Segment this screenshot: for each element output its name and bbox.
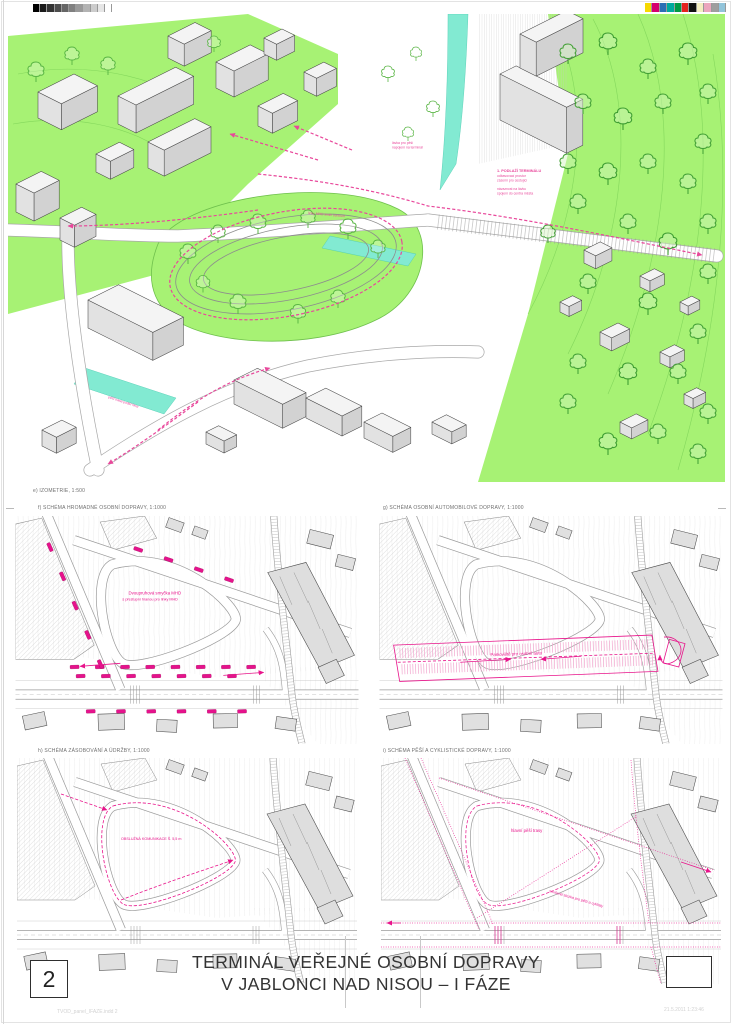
iso-caption: e) IZOMETRIE, 1:500 (33, 488, 85, 494)
presentation-board: lávka pro pěší napojení na terminál 1. P… (0, 0, 732, 1024)
plan-f-note1: Dvoupruhová smyčka MHD (128, 591, 181, 596)
calibration-swatch (98, 4, 105, 12)
plan-caption-h: h) SCHÉMA ZÁSOBOVÁNÍ A ÚDRŽBY, 1:1000 (38, 748, 150, 754)
footer-filename: TVOD_panel_IFAZE.indd 2 (57, 1009, 118, 1015)
isometric-drawing: lávka pro pěší napojení na terminál 1. P… (8, 14, 725, 482)
color-calibration-bar (645, 3, 726, 12)
iso-label-roof-4: spojení do centra města (497, 192, 533, 196)
iso-label-bridge-2: napojení na terminál (392, 146, 423, 150)
calibration-swatch (55, 4, 62, 12)
plan-panel-service: OBSLUŽNÁ KOMUNIKACE Š. 5,5 m (12, 758, 362, 984)
calibration-swatch (33, 4, 40, 12)
calibration-swatch (91, 4, 98, 12)
iso-label-roof-1: odbavovací prostor (497, 174, 527, 178)
plan-panel-pedestrian: hlavní pěší trasy smíšená stezka pro pěš… (376, 758, 726, 984)
calibration-swatch (719, 3, 726, 12)
sheet-left-edge (3, 0, 4, 1024)
calibration-swatch (69, 4, 76, 12)
calibration-swatch (40, 4, 47, 12)
iso-label-roof-3: návaznost na lávku (497, 187, 526, 191)
calibration-swatch (105, 4, 112, 12)
footer-timestamp: 21.5.2011 1:23:46 (664, 1007, 704, 1013)
plan-i-note1: hlavní pěší trasy (511, 828, 543, 833)
calibration-swatch (62, 4, 69, 12)
plan-service: OBSLUŽNÁ KOMUNIKACE Š. 5,5 m (12, 758, 362, 984)
board-title-line1: TERMINÁL VEŘEJNÉ OSOBNÍ DOPRAVY (0, 952, 732, 974)
iso-label-roof-2: zázemí pro cestující (497, 179, 527, 183)
grayscale-calibration-bar (33, 4, 112, 12)
iso-label-bridge-1: lávka pro pěší (392, 141, 413, 145)
calibration-swatch (704, 3, 711, 12)
isometric-view-panel: lávka pro pěší napojení na terminál 1. P… (8, 14, 725, 482)
calibration-swatch (712, 3, 719, 12)
plan-panel-car-traffic: Parkoviště pro osobní auta (376, 516, 726, 744)
calibration-swatch (675, 3, 682, 12)
plan-caption-g: g) SCHÉMA OSOBNÍ AUTOMOBILOVÉ DOPRAVY, 1… (383, 505, 524, 511)
calibration-swatch (652, 3, 659, 12)
calibration-swatch (689, 3, 696, 12)
board-title-line2: V JABLONCI NAD NISOU – I FÁZE (0, 974, 732, 996)
calibration-swatch (667, 3, 674, 12)
calibration-swatch (47, 4, 54, 12)
plan-caption-i: i) SCHÉMA PĚŠÍ A CYKLISTICKÉ DOPRAVY, 1:… (383, 748, 511, 754)
plan-panel-public-transport: Dvoupruhová smyčka MHD s přestupní hrano… (12, 516, 362, 744)
calibration-swatch (76, 4, 83, 12)
title-block: TERMINÁL VEŘEJNÉ OSOBNÍ DOPRAVY V JABLON… (0, 952, 732, 996)
plan-caption-f: f) SCHÉMA HROMADNÉ OSOBNÍ DOPRAVY, 1:100… (38, 505, 166, 511)
calibration-swatch (645, 3, 652, 12)
calibration-swatch (697, 3, 704, 12)
calibration-swatch (682, 3, 689, 12)
plan-f-note2: s přestupní hranou pro linky MHD (122, 598, 178, 602)
plan-car-traffic: Parkoviště pro osobní auta (376, 516, 726, 744)
iso-label-roof-title: 1. PODLAŽÍ TERMINÁLU (497, 168, 542, 173)
trim-mark-left (6, 508, 14, 509)
plan-public-transport: Dvoupruhová smyčka MHD s přestupní hrano… (12, 516, 362, 744)
plan-h-note1: OBSLUŽNÁ KOMUNIKACE Š. 5,5 m (121, 836, 181, 841)
calibration-swatch (83, 4, 90, 12)
plan-pedestrian: hlavní pěší trasy smíšená stezka pro pěš… (376, 758, 726, 984)
calibration-swatch (660, 3, 667, 12)
trim-mark-right (718, 508, 726, 509)
